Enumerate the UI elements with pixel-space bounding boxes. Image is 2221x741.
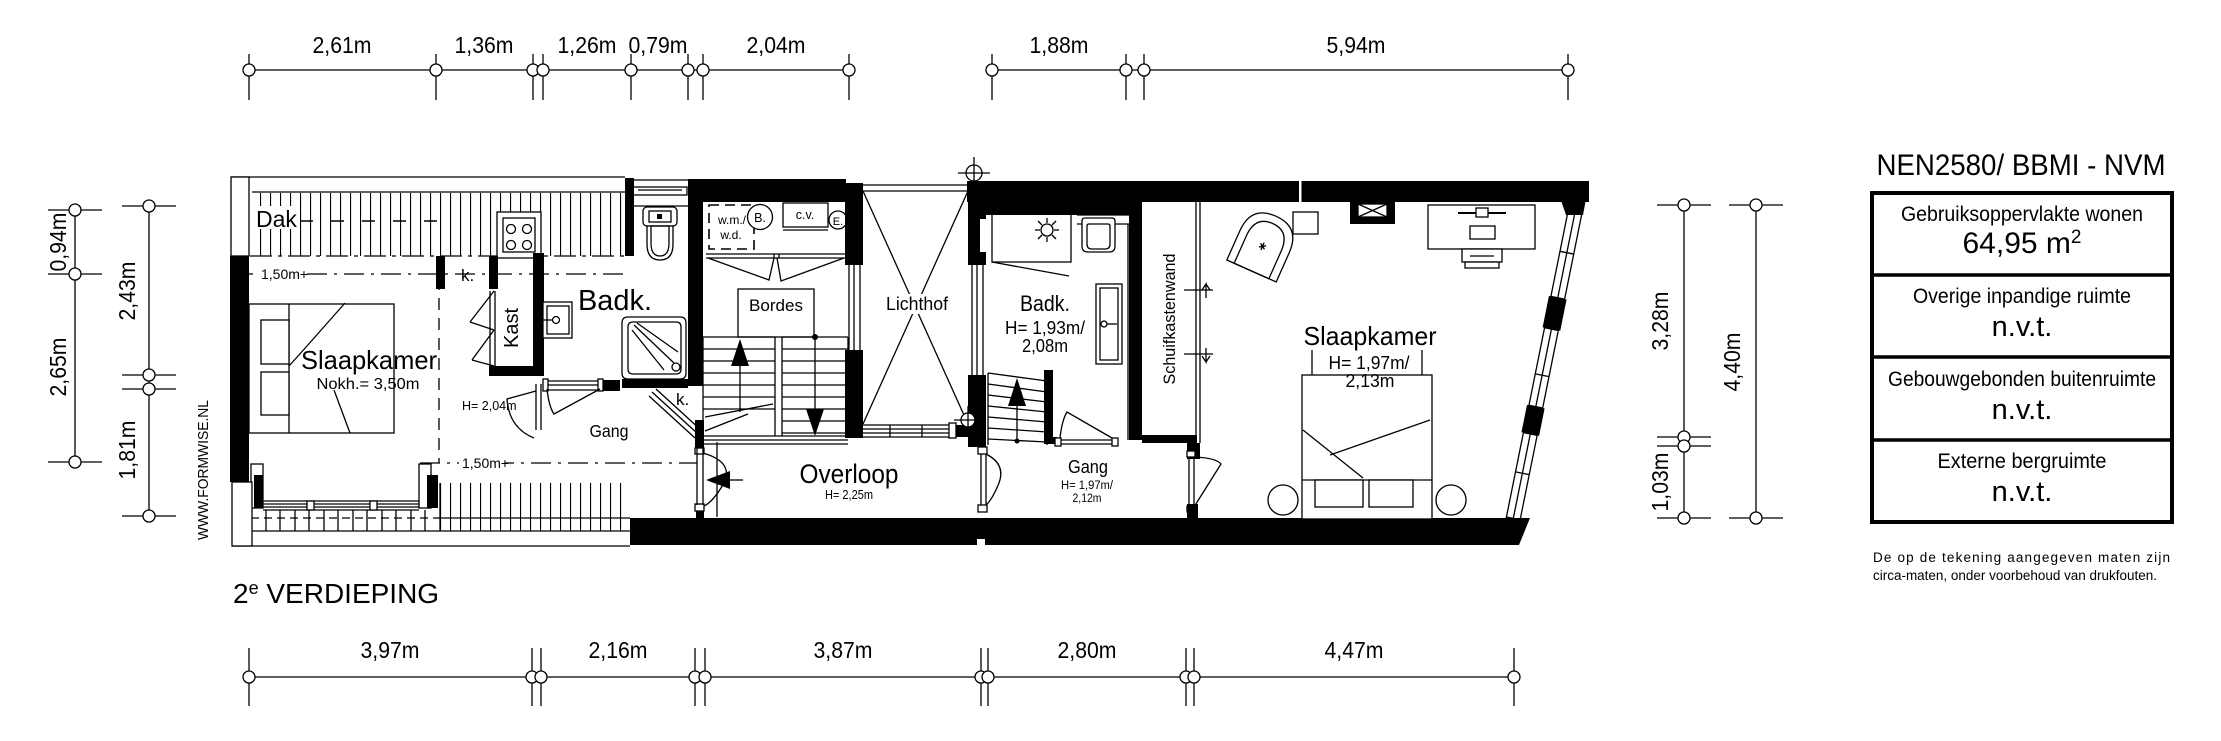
- svg-text:Externe bergruimte: Externe bergruimte: [1938, 450, 2107, 473]
- svg-text:1,26m: 1,26m: [558, 32, 617, 58]
- svg-text:k.: k.: [461, 266, 474, 285]
- svg-text:n.v.t.: n.v.t.: [1992, 394, 2053, 426]
- svg-text:Schuifkastenwand: Schuifkastenwand: [1160, 254, 1179, 385]
- svg-text:De op de tekening aangegeven m: De op de tekening aangegeven maten zijn: [1873, 550, 2170, 565]
- svg-text:Slaapkamer: Slaapkamer: [1304, 321, 1437, 351]
- svg-text:circa-maten, onder voorbehoud: circa-maten, onder voorbehoud van drukfo…: [1873, 568, 2157, 583]
- svg-text:1,50m+: 1,50m+: [462, 455, 509, 471]
- svg-text:Overloop: Overloop: [800, 459, 899, 489]
- svg-text:2,65m: 2,65m: [45, 338, 71, 397]
- svg-text:1,36m: 1,36m: [455, 32, 514, 58]
- svg-text:w.d.: w.d.: [719, 228, 741, 242]
- svg-text:2e VERDIEPING: 2e VERDIEPING: [233, 578, 439, 609]
- svg-text:0,94m: 0,94m: [45, 213, 71, 272]
- svg-text:4,40m: 4,40m: [1719, 333, 1745, 392]
- svg-text:Slaapkamer: Slaapkamer: [301, 345, 437, 375]
- svg-text:Gang: Gang: [590, 421, 629, 441]
- svg-text:2,43m: 2,43m: [114, 262, 140, 321]
- svg-text:2,61m: 2,61m: [313, 32, 372, 58]
- svg-text:B.: B.: [754, 211, 766, 225]
- svg-text:E.: E.: [833, 216, 843, 228]
- svg-text:3,87m: 3,87m: [814, 637, 873, 663]
- svg-text:3,28m: 3,28m: [1647, 292, 1673, 351]
- svg-text:1,50m+: 1,50m+: [261, 266, 308, 282]
- svg-text:H= 2,25m: H= 2,25m: [825, 488, 873, 502]
- svg-text:k.: k.: [676, 390, 689, 409]
- svg-text:1,03m: 1,03m: [1647, 453, 1673, 512]
- svg-text:Kast: Kast: [501, 308, 523, 348]
- svg-text:NEN2580/ BBMI - NVM: NEN2580/ BBMI - NVM: [1877, 149, 2166, 182]
- svg-text:2,80m: 2,80m: [1058, 637, 1117, 663]
- svg-text:Lichthof: Lichthof: [886, 294, 949, 314]
- svg-text:H= 2,04m: H= 2,04m: [462, 399, 517, 413]
- svg-text:Badk.: Badk.: [578, 285, 652, 317]
- svg-text:WWW.FORMWISE.NL: WWW.FORMWISE.NL: [196, 400, 212, 540]
- svg-text:H= 1,97m/: H= 1,97m/: [1329, 353, 1410, 373]
- svg-text:0,79m: 0,79m: [629, 32, 688, 58]
- svg-text:Bordes: Bordes: [749, 296, 803, 315]
- svg-text:w.m./: w.m./: [717, 213, 747, 227]
- svg-text:5,94m: 5,94m: [1327, 32, 1386, 58]
- svg-text:2,13m: 2,13m: [1346, 371, 1395, 391]
- svg-text:64,95 m2: 64,95 m2: [1963, 227, 2082, 260]
- svg-text:Gebruiksoppervlakte wonen: Gebruiksoppervlakte wonen: [1901, 203, 2143, 226]
- svg-text:Dak: Dak: [256, 206, 297, 232]
- svg-text:Badk.: Badk.: [1020, 291, 1070, 316]
- svg-text:H= 1,97m/: H= 1,97m/: [1061, 480, 1114, 492]
- svg-text:n.v.t.: n.v.t.: [1992, 476, 2053, 508]
- svg-text:2,08m: 2,08m: [1022, 336, 1068, 356]
- svg-text:2,16m: 2,16m: [589, 637, 648, 663]
- svg-text:4,47m: 4,47m: [1325, 637, 1384, 663]
- svg-text:2,12m: 2,12m: [1073, 493, 1102, 505]
- svg-text:1,81m: 1,81m: [114, 421, 140, 480]
- svg-text:c.v.: c.v.: [796, 208, 815, 222]
- svg-text:Nokh.= 3,50m: Nokh.= 3,50m: [317, 376, 420, 393]
- svg-text:3,97m: 3,97m: [361, 637, 420, 663]
- svg-text:1,88m: 1,88m: [1030, 32, 1089, 58]
- svg-text:Gang: Gang: [1068, 457, 1108, 477]
- svg-text:H= 1,93m/: H= 1,93m/: [1005, 318, 1085, 338]
- svg-text:Overige inpandige ruimte: Overige inpandige ruimte: [1913, 285, 2131, 308]
- svg-text:n.v.t.: n.v.t.: [1992, 311, 2053, 343]
- svg-text:2,04m: 2,04m: [747, 32, 806, 58]
- svg-text:Gebouwgebonden buitenruimte: Gebouwgebonden buitenruimte: [1888, 368, 2156, 391]
